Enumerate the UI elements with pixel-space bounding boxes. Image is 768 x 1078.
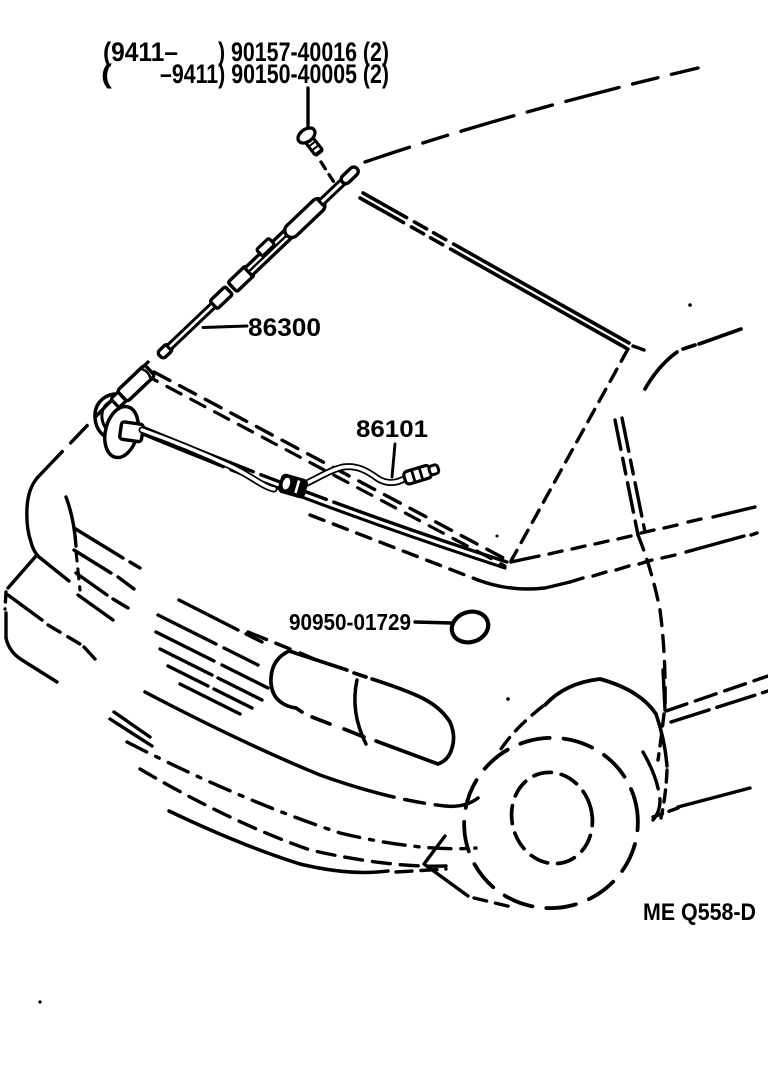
svg-text:(: ( bbox=[101, 59, 112, 89]
svg-text:86300: 86300 bbox=[248, 314, 321, 342]
svg-text:ME Q558-D: ME Q558-D bbox=[643, 899, 756, 926]
svg-text:90950-01729: 90950-01729 bbox=[289, 609, 411, 635]
svg-text:–9411) 90150-40005 (2): –9411) 90150-40005 (2) bbox=[160, 59, 389, 89]
svg-text:86101: 86101 bbox=[356, 416, 428, 443]
